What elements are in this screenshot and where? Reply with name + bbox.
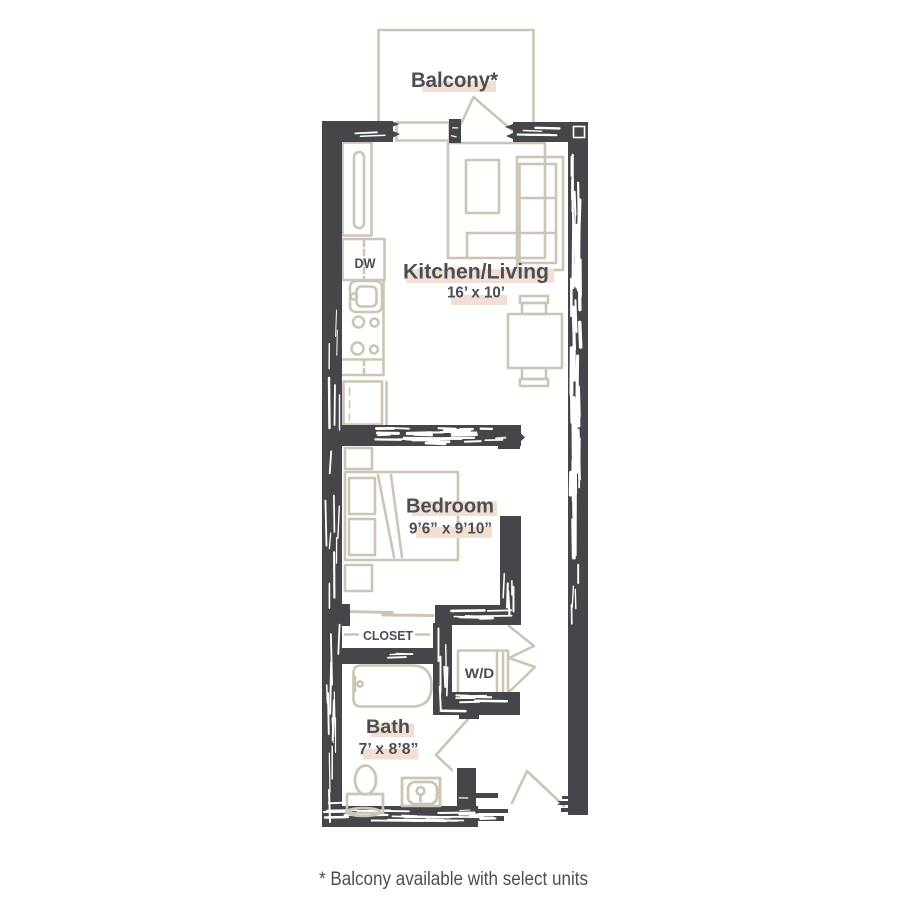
svg-text:DW: DW: [355, 256, 376, 271]
svg-text:16’ x 10’: 16’ x 10’: [447, 285, 505, 302]
svg-text:CLOSET: CLOSET: [363, 628, 413, 643]
svg-text:Kitchen/Living: Kitchen/Living: [403, 261, 549, 284]
svg-text:9’6” x 9’10”: 9’6” x 9’10”: [409, 521, 492, 538]
svg-text:Bath: Bath: [366, 717, 410, 738]
svg-text:7’ x 8’8”: 7’ x 8’8”: [359, 741, 419, 758]
svg-text:* Balcony available with selec: * Balcony available with select units: [319, 868, 588, 890]
svg-text:Bedroom: Bedroom: [406, 496, 494, 518]
svg-text:Balcony*: Balcony*: [411, 69, 499, 92]
svg-text:W/D: W/D: [465, 666, 495, 681]
